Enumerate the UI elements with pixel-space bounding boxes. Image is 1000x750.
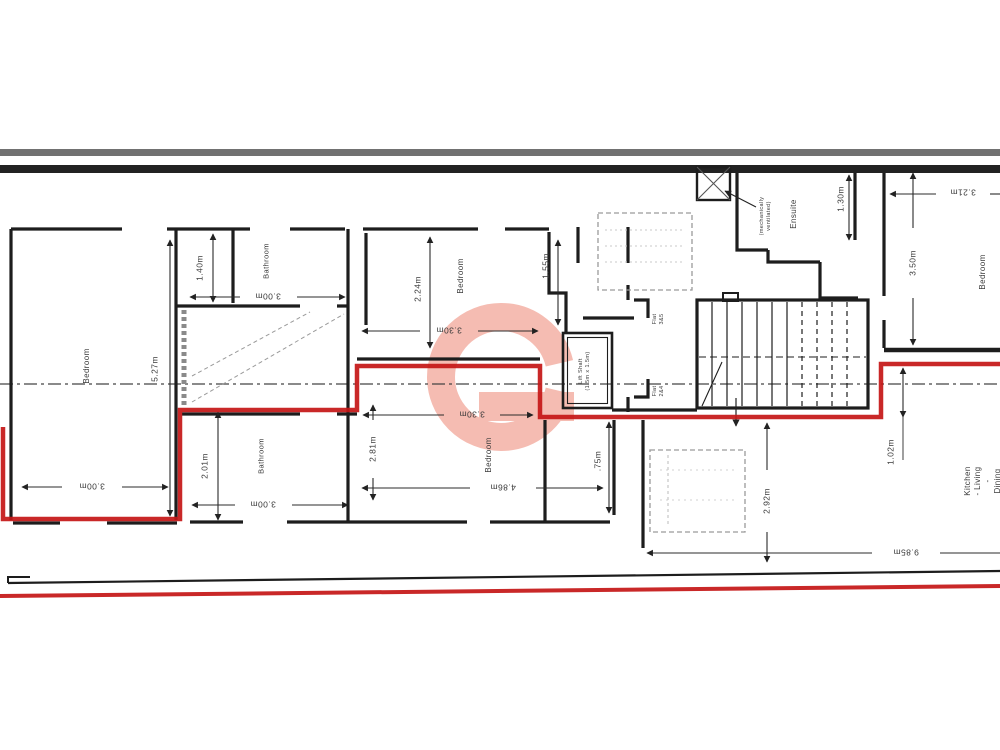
dim-2-92m: 2.92m <box>762 488 773 514</box>
room-label-bedroom-right: Bedroom <box>978 254 988 289</box>
dim-3-30m-upper: 3.30m <box>436 325 462 336</box>
dim-3-00m-bathroom-low: 3.00m <box>250 499 276 510</box>
room-label-bedroom-left: Bedroom <box>82 348 92 383</box>
room-label-kitchen-living-dining: Kitchen - Living - Dining - <box>963 466 1000 495</box>
dim-1-40m: 1.40m <box>195 255 206 281</box>
room-label-bathroom-lower: Bathroom <box>256 438 265 474</box>
floorplan-page: BedroomBathroomBedroomBathroomBedroomBed… <box>0 0 1000 750</box>
flat-2-4-label: Flat 2&4 <box>652 386 666 397</box>
dim-3-21m: 3.21m <box>950 187 976 198</box>
dim-5-27m: 5.27m <box>150 356 161 382</box>
dim-1-55m: 1.55m <box>541 253 552 279</box>
lift-shaft-label: Lift Shaft (1.5m x 1.5m) <box>578 351 592 390</box>
dim-2-01m: 2.01m <box>200 453 211 479</box>
mech-vent-label: (mechanically ventilated) <box>759 197 773 236</box>
dim-3-00m-bathroom-up: 3.00m <box>255 291 281 302</box>
dim-3-00m-left-room: 3.00m <box>79 481 105 492</box>
room-label-bedroom-mid-lower: Bedroom <box>484 437 494 472</box>
room-label-bathroom-upper: Bathroom <box>261 243 270 279</box>
dim-3-50m: 3.50m <box>908 250 919 276</box>
dim-1-02m: 1.02m <box>886 439 897 465</box>
flat-3-5-label: Flat 3&5 <box>652 314 666 325</box>
dim-0-75m: .75m <box>593 451 604 472</box>
label-layer: BedroomBathroomBedroomBathroomBedroomBed… <box>0 0 1000 750</box>
dim-1-30m: 1.30m <box>836 186 847 212</box>
dim-4-86m: 4.86m <box>490 482 516 493</box>
room-label-ensuite: Ensuite <box>789 199 799 228</box>
dim-9-85m: 9.85m <box>893 547 919 558</box>
room-label-bedroom-mid-upper: Bedroom <box>456 258 466 293</box>
dim-3-30m-lower: 3.30m <box>459 409 485 420</box>
dim-2-81m: 2.81m <box>368 436 379 462</box>
dim-2-24m: 2.24m <box>413 276 424 302</box>
